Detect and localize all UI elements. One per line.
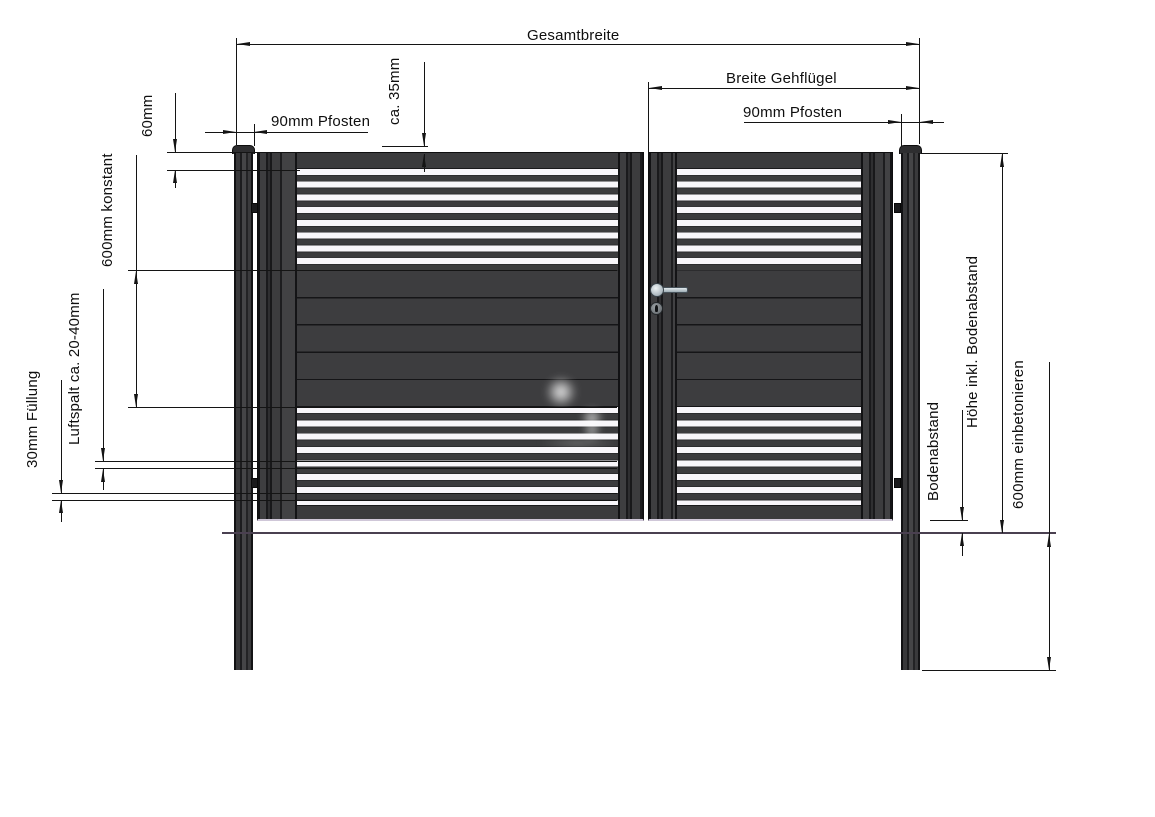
arrowhead <box>422 133 426 146</box>
extension-line <box>167 152 298 153</box>
arrowhead <box>1000 520 1004 533</box>
render-highlight <box>582 424 602 438</box>
arrowhead <box>59 480 63 493</box>
arrowhead <box>254 130 267 134</box>
ground-line <box>222 532 1056 534</box>
lower-slats <box>677 407 861 505</box>
arrowhead <box>134 394 138 407</box>
dim-label: 60mm <box>139 95 157 137</box>
arrowhead <box>173 139 177 152</box>
lower-slats <box>297 407 618 505</box>
arrowhead <box>906 42 919 46</box>
privacy-panels <box>677 271 861 407</box>
arrowhead <box>960 507 964 520</box>
arrowhead <box>888 120 901 124</box>
arrowhead <box>101 448 105 461</box>
dim-line <box>175 170 176 188</box>
keyhole-icon <box>655 305 658 312</box>
upper-slats <box>677 169 861 271</box>
hinge-stile <box>861 153 892 519</box>
right-gate-post <box>901 153 920 670</box>
extension-line <box>95 461 617 462</box>
slat-panel <box>677 153 861 519</box>
bottom-rail <box>297 505 618 518</box>
extension-line <box>167 170 300 171</box>
extension-line <box>648 82 649 152</box>
extension-line <box>921 153 1008 154</box>
dim-line <box>424 154 425 172</box>
top-rail <box>677 153 861 169</box>
drive-gate-leaf <box>257 152 644 521</box>
extension-line <box>930 520 968 521</box>
arrowhead <box>960 533 964 546</box>
dim-line <box>103 289 104 461</box>
left-gate-post <box>234 153 253 670</box>
pedestrian-gate-leaf <box>648 152 893 521</box>
dim-label: ca. 35mm <box>386 58 404 125</box>
arrowhead <box>1000 154 1004 167</box>
dim-line <box>648 88 920 89</box>
arrowhead <box>237 42 250 46</box>
arrowhead <box>59 500 63 513</box>
extension-line <box>919 38 920 144</box>
render-highlight <box>544 377 578 407</box>
hinge-stile <box>258 153 297 519</box>
extension-line <box>95 468 617 469</box>
dim-label: Höhe inkl. Bodenabstand <box>964 256 982 428</box>
lock-stile <box>618 153 643 519</box>
extension-line <box>128 270 617 271</box>
dim-label: 600mm konstant <box>99 153 117 267</box>
dim-label: 600mm einbetonieren <box>1010 360 1028 509</box>
dim-line <box>1049 362 1050 670</box>
arrowhead <box>1047 534 1051 547</box>
dim-line <box>1002 153 1003 533</box>
dim-label: Bodenabstand <box>925 402 943 501</box>
dim-line <box>962 410 963 520</box>
lock-stile <box>649 153 677 519</box>
dim-line <box>61 380 62 493</box>
dim-label: Breite Gehflügel <box>726 70 837 87</box>
hinge <box>894 203 901 213</box>
lock-cylinder <box>650 302 663 315</box>
render-highlight <box>538 438 618 448</box>
extension-line <box>254 124 255 146</box>
hinge <box>251 203 258 213</box>
upper-slats <box>297 169 618 271</box>
extension-line <box>382 146 428 147</box>
extension-line <box>901 114 902 146</box>
top-rail <box>297 153 618 169</box>
extension-line <box>236 38 237 145</box>
dim-label: Luftspalt ca. 20-40mm <box>66 292 84 445</box>
arrowhead <box>920 120 933 124</box>
hinge <box>251 478 258 488</box>
extension-line <box>52 500 617 501</box>
extension-line <box>52 493 617 494</box>
arrowhead <box>101 469 105 482</box>
extension-line <box>128 407 617 408</box>
hinge <box>894 478 901 488</box>
arrowhead <box>1047 657 1051 670</box>
dim-label: 90mm Pfosten <box>743 104 842 121</box>
door-handle-rose <box>650 283 664 297</box>
arrowhead <box>134 271 138 284</box>
dim-label: Gesamtbreite <box>527 27 619 44</box>
arrowhead <box>649 86 662 90</box>
arrowhead <box>906 86 919 90</box>
footing-line <box>922 670 1056 671</box>
arrowhead <box>223 130 236 134</box>
slat-panel <box>297 153 618 519</box>
bottom-rail <box>677 505 861 518</box>
technical-drawing-sheet: Gesamtbreite Breite Gehflügel 90mm Pfost… <box>0 0 1155 817</box>
dim-label: 90mm Pfosten <box>271 113 370 130</box>
dim-label: 30mm Füllung <box>24 371 42 468</box>
dim-line <box>237 44 919 45</box>
dim-line <box>744 122 944 123</box>
